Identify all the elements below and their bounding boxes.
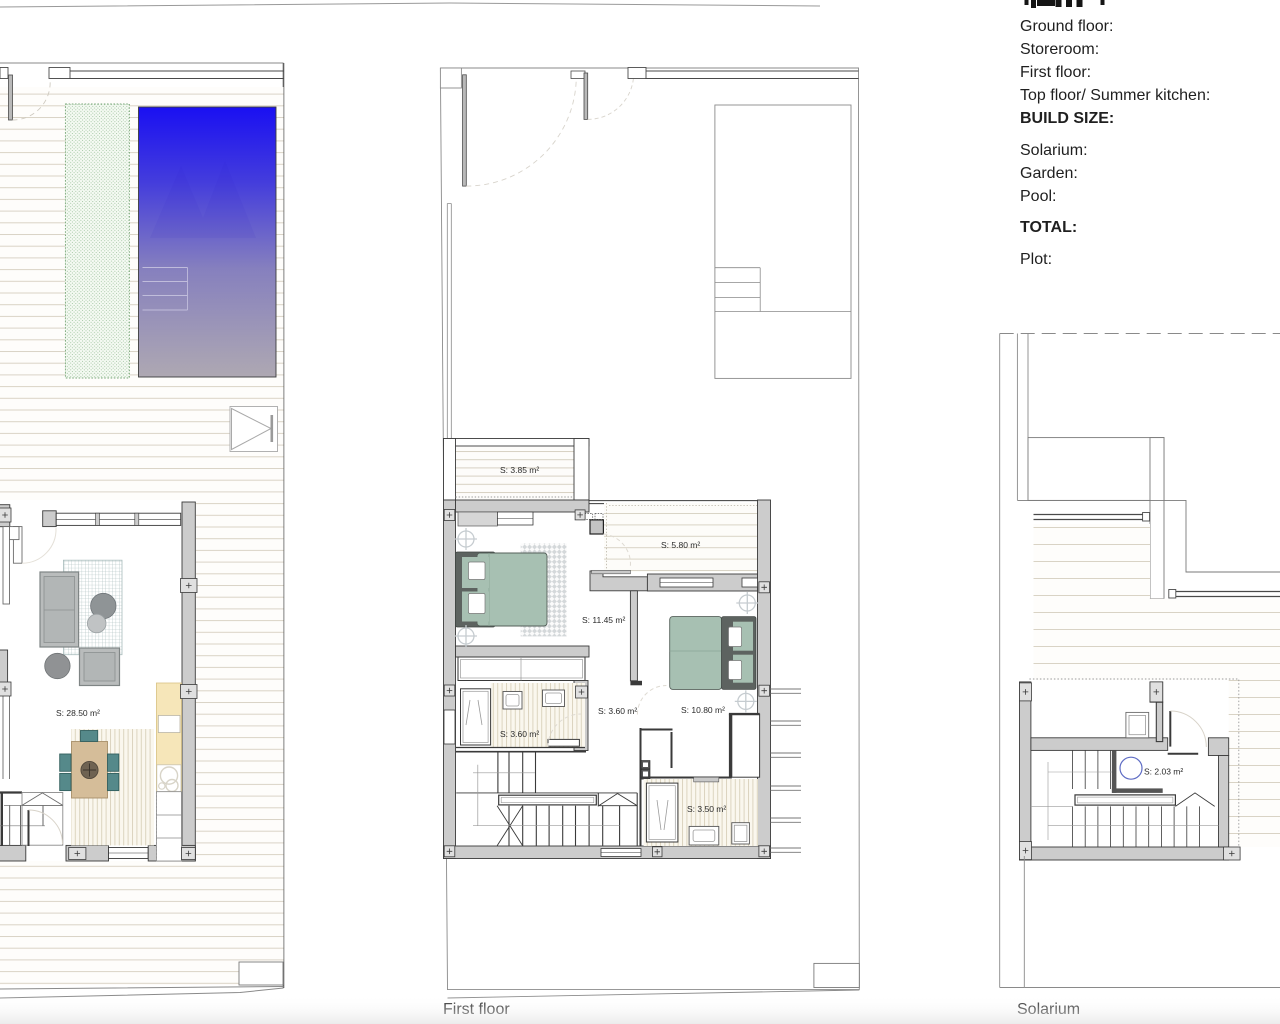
svg-text:S: 10.80 m²: S: 10.80 m² — [681, 705, 725, 715]
svg-text:S: 3.50 m²: S: 3.50 m² — [687, 804, 726, 814]
svg-text:Storeroom:: Storeroom: — [1020, 41, 1099, 58]
svg-text:Pool:: Pool: — [1020, 188, 1056, 205]
svg-text:First floor:: First floor: — [1020, 64, 1091, 81]
svg-text:Ground floor:: Ground floor: — [1020, 18, 1113, 35]
svg-text:BUILD SIZE:: BUILD SIZE: — [1020, 110, 1114, 127]
svg-text:Solarium:: Solarium: — [1020, 142, 1088, 159]
svg-text:S: 28.50 m²: S: 28.50 m² — [56, 708, 100, 718]
svg-text:Plot:: Plot: — [1020, 251, 1052, 268]
svg-text:Garden:: Garden: — [1020, 165, 1078, 182]
svg-text:S: 3.85 m²: S: 3.85 m² — [500, 465, 539, 475]
svg-text:S: 11.45 m²: S: 11.45 m² — [582, 615, 625, 625]
svg-text:TOTAL:: TOTAL: — [1020, 219, 1077, 236]
svg-text:S: 5.80 m²: S: 5.80 m² — [661, 540, 700, 550]
svg-text:Top floor/ Summer kitchen:: Top floor/ Summer kitchen: — [1020, 87, 1210, 104]
svg-text:S: 3.60 m²: S: 3.60 m² — [500, 729, 539, 739]
svg-text:S: 2.03 m²: S: 2.03 m² — [1144, 767, 1183, 777]
svg-text:S: 3.60 m²: S: 3.60 m² — [598, 706, 637, 716]
